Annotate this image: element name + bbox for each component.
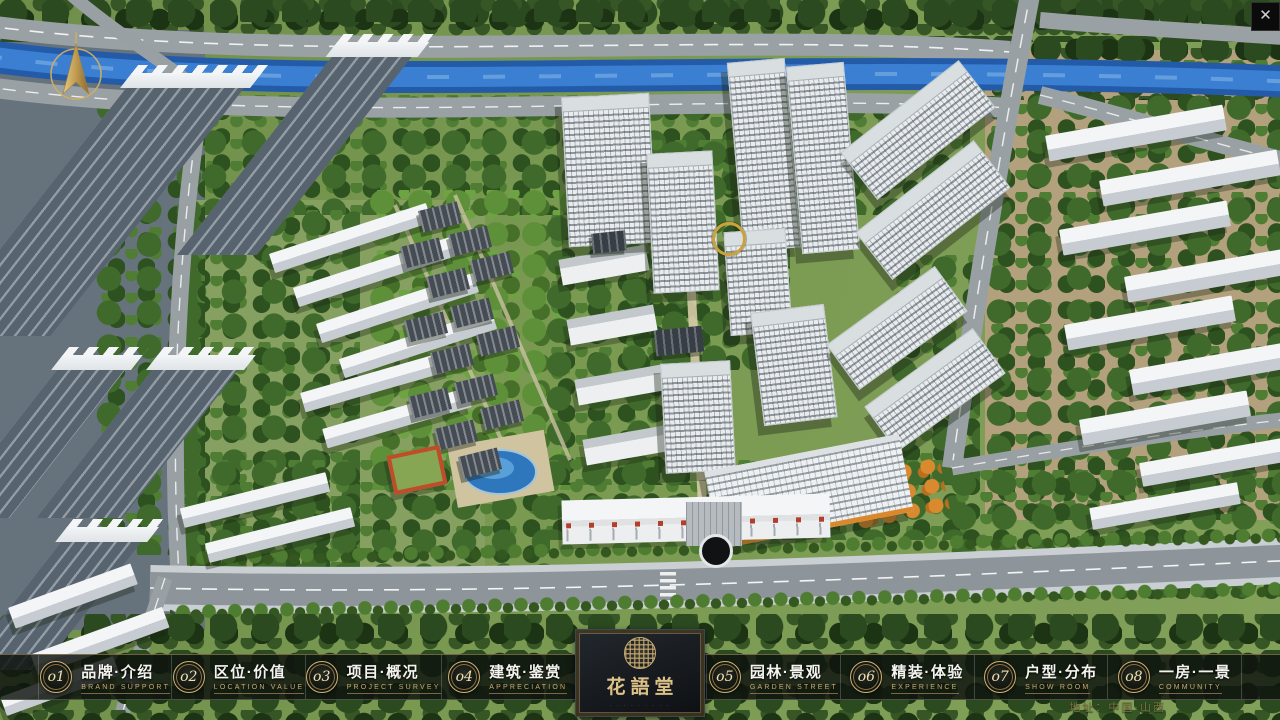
nav-title: 建筑·鉴赏 <box>489 661 562 682</box>
nav-subtitle: LOCATION VALUE <box>214 684 304 694</box>
logo-slot: 花語堂 · · · · · · · · · <box>574 655 706 699</box>
masterplan-presentation: ✕ o1 品牌·介绍BRAND SUPPORT o2 区位·价值LOCATION… <box>0 0 1280 720</box>
tree-cluster <box>240 0 780 22</box>
tower-block <box>660 360 736 474</box>
nav-item-experience[interactable]: o6 精装·体验EXPERIENCE <box>840 655 974 699</box>
nav-subtitle: COMMUNITY <box>1159 684 1222 694</box>
pavilion <box>591 230 627 253</box>
nav-item-location[interactable]: o2 区位·价值LOCATION VALUE <box>171 655 304 699</box>
pavilion <box>654 326 704 357</box>
nav-subtitle: PROJECT SURVEY <box>347 684 441 694</box>
nav-title: 项目·概况 <box>347 661 420 682</box>
nav-badge-icon: o2 <box>173 661 205 693</box>
tower-block <box>750 304 837 426</box>
nav-badge-icon: o3 <box>306 661 338 693</box>
nav-badge-icon: o5 <box>709 661 741 693</box>
fountain-ring <box>712 222 746 256</box>
nav-subtitle: EXPERIENCE <box>891 684 958 694</box>
nav-item-brand[interactable]: o1 品牌·介绍BRAND SUPPORT <box>38 655 171 699</box>
nav-subtitle: BRAND SUPPORT <box>81 684 170 694</box>
nav-badge-icon: o8 <box>1118 661 1150 693</box>
nav-title: 户型·分布 <box>1025 661 1098 682</box>
nav-title: 一房·一景 <box>1159 661 1232 682</box>
nav-subtitle: APPRECIATION <box>489 684 567 694</box>
nav-badge-icon: o4 <box>448 661 480 693</box>
nav-item-garden[interactable]: o5 园林·景观GARDEN STREET <box>706 655 840 699</box>
tower-block <box>561 93 657 247</box>
project-address: 地址：中国·山西 <box>1069 699 1166 715</box>
brand-logo-panel[interactable]: 花語堂 · · · · · · · · · <box>575 629 705 717</box>
nav-title: 品牌·介绍 <box>81 661 154 682</box>
brand-name: 花語堂 <box>576 672 704 699</box>
nav-badge-icon: o7 <box>984 661 1016 693</box>
nav-item-project[interactable]: o3 项目·概况PROJECT SURVEY <box>305 655 441 699</box>
nav-group-left: o1 品牌·介绍BRAND SUPPORT o2 区位·价值LOCATION V… <box>38 655 574 699</box>
tower-block <box>646 150 719 293</box>
seal-emblem-icon <box>624 637 656 669</box>
nav-group-right: o5 园林·景观GARDEN STREET o6 精装·体验EXPERIENCE… <box>706 655 1242 699</box>
nav-badge-icon: o6 <box>850 661 882 693</box>
bottom-navbar: o1 品牌·介绍BRAND SUPPORT o2 区位·价值LOCATION V… <box>0 654 1280 700</box>
nav-item-community[interactable]: o8 一房·一景COMMUNITY <box>1107 655 1242 699</box>
nav-subtitle: SHOW ROOM <box>1025 684 1090 694</box>
nav-title: 园林·景观 <box>750 661 823 682</box>
nav-badge-icon: o1 <box>40 661 72 693</box>
brand-tagline: · · · · · · · · · <box>576 703 704 709</box>
nav-title: 区位·价值 <box>214 661 287 682</box>
nav-title: 精装·体验 <box>891 661 964 682</box>
nav-subtitle: GARDEN STREET <box>750 684 838 694</box>
gate-emblem <box>699 534 733 568</box>
nav-item-floorplan[interactable]: o7 户型·分布SHOW ROOM <box>974 655 1108 699</box>
nav-item-architecture[interactable]: o4 建筑·鉴赏APPRECIATION <box>441 655 574 699</box>
close-button[interactable]: ✕ <box>1251 2 1280 31</box>
north-compass-icon <box>44 32 108 108</box>
